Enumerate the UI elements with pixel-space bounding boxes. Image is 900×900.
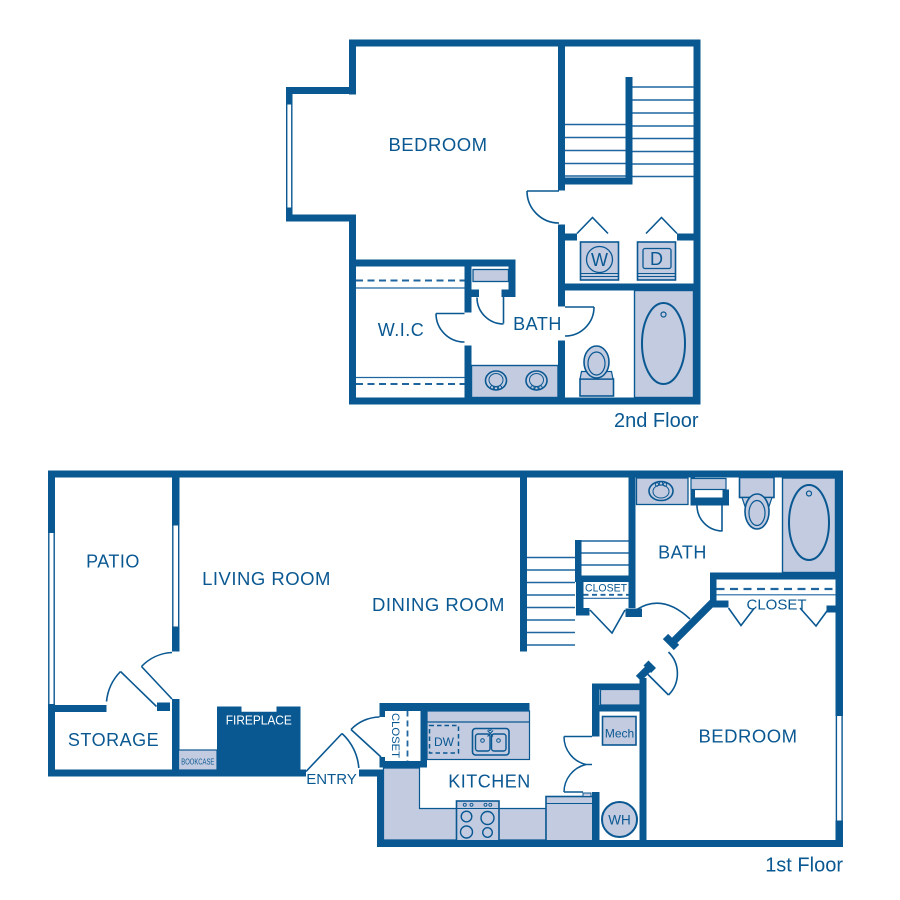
- svg-text:Mech: Mech: [605, 727, 634, 741]
- svg-text:DINING ROOM: DINING ROOM: [372, 594, 505, 615]
- svg-text:CLOSET: CLOSET: [389, 713, 401, 758]
- svg-text:BATH: BATH: [513, 314, 562, 334]
- svg-text:KITCHEN: KITCHEN: [448, 772, 531, 792]
- svg-text:WH: WH: [608, 813, 631, 828]
- svg-text:1st Floor: 1st Floor: [765, 855, 843, 877]
- svg-text:2nd Floor: 2nd Floor: [614, 410, 699, 432]
- svg-text:BEDROOM: BEDROOM: [698, 726, 797, 747]
- svg-text:DW: DW: [434, 735, 455, 749]
- svg-text:BEDROOM: BEDROOM: [388, 134, 487, 155]
- svg-text:ENTRY: ENTRY: [306, 771, 357, 788]
- svg-text:W.I.C: W.I.C: [378, 320, 425, 340]
- svg-text:CLOSET: CLOSET: [585, 583, 627, 595]
- svg-text:CLOSET: CLOSET: [746, 597, 806, 614]
- svg-text:W: W: [591, 250, 608, 270]
- svg-text:PATIO: PATIO: [86, 552, 140, 572]
- svg-text:FIREPLACE: FIREPLACE: [226, 714, 292, 728]
- svg-text:D: D: [650, 249, 663, 269]
- svg-text:BOOKCASE: BOOKCASE: [181, 758, 214, 767]
- svg-text:BATH: BATH: [658, 543, 707, 563]
- svg-text:STORAGE: STORAGE: [68, 730, 159, 750]
- svg-text:LIVING ROOM: LIVING ROOM: [202, 568, 331, 589]
